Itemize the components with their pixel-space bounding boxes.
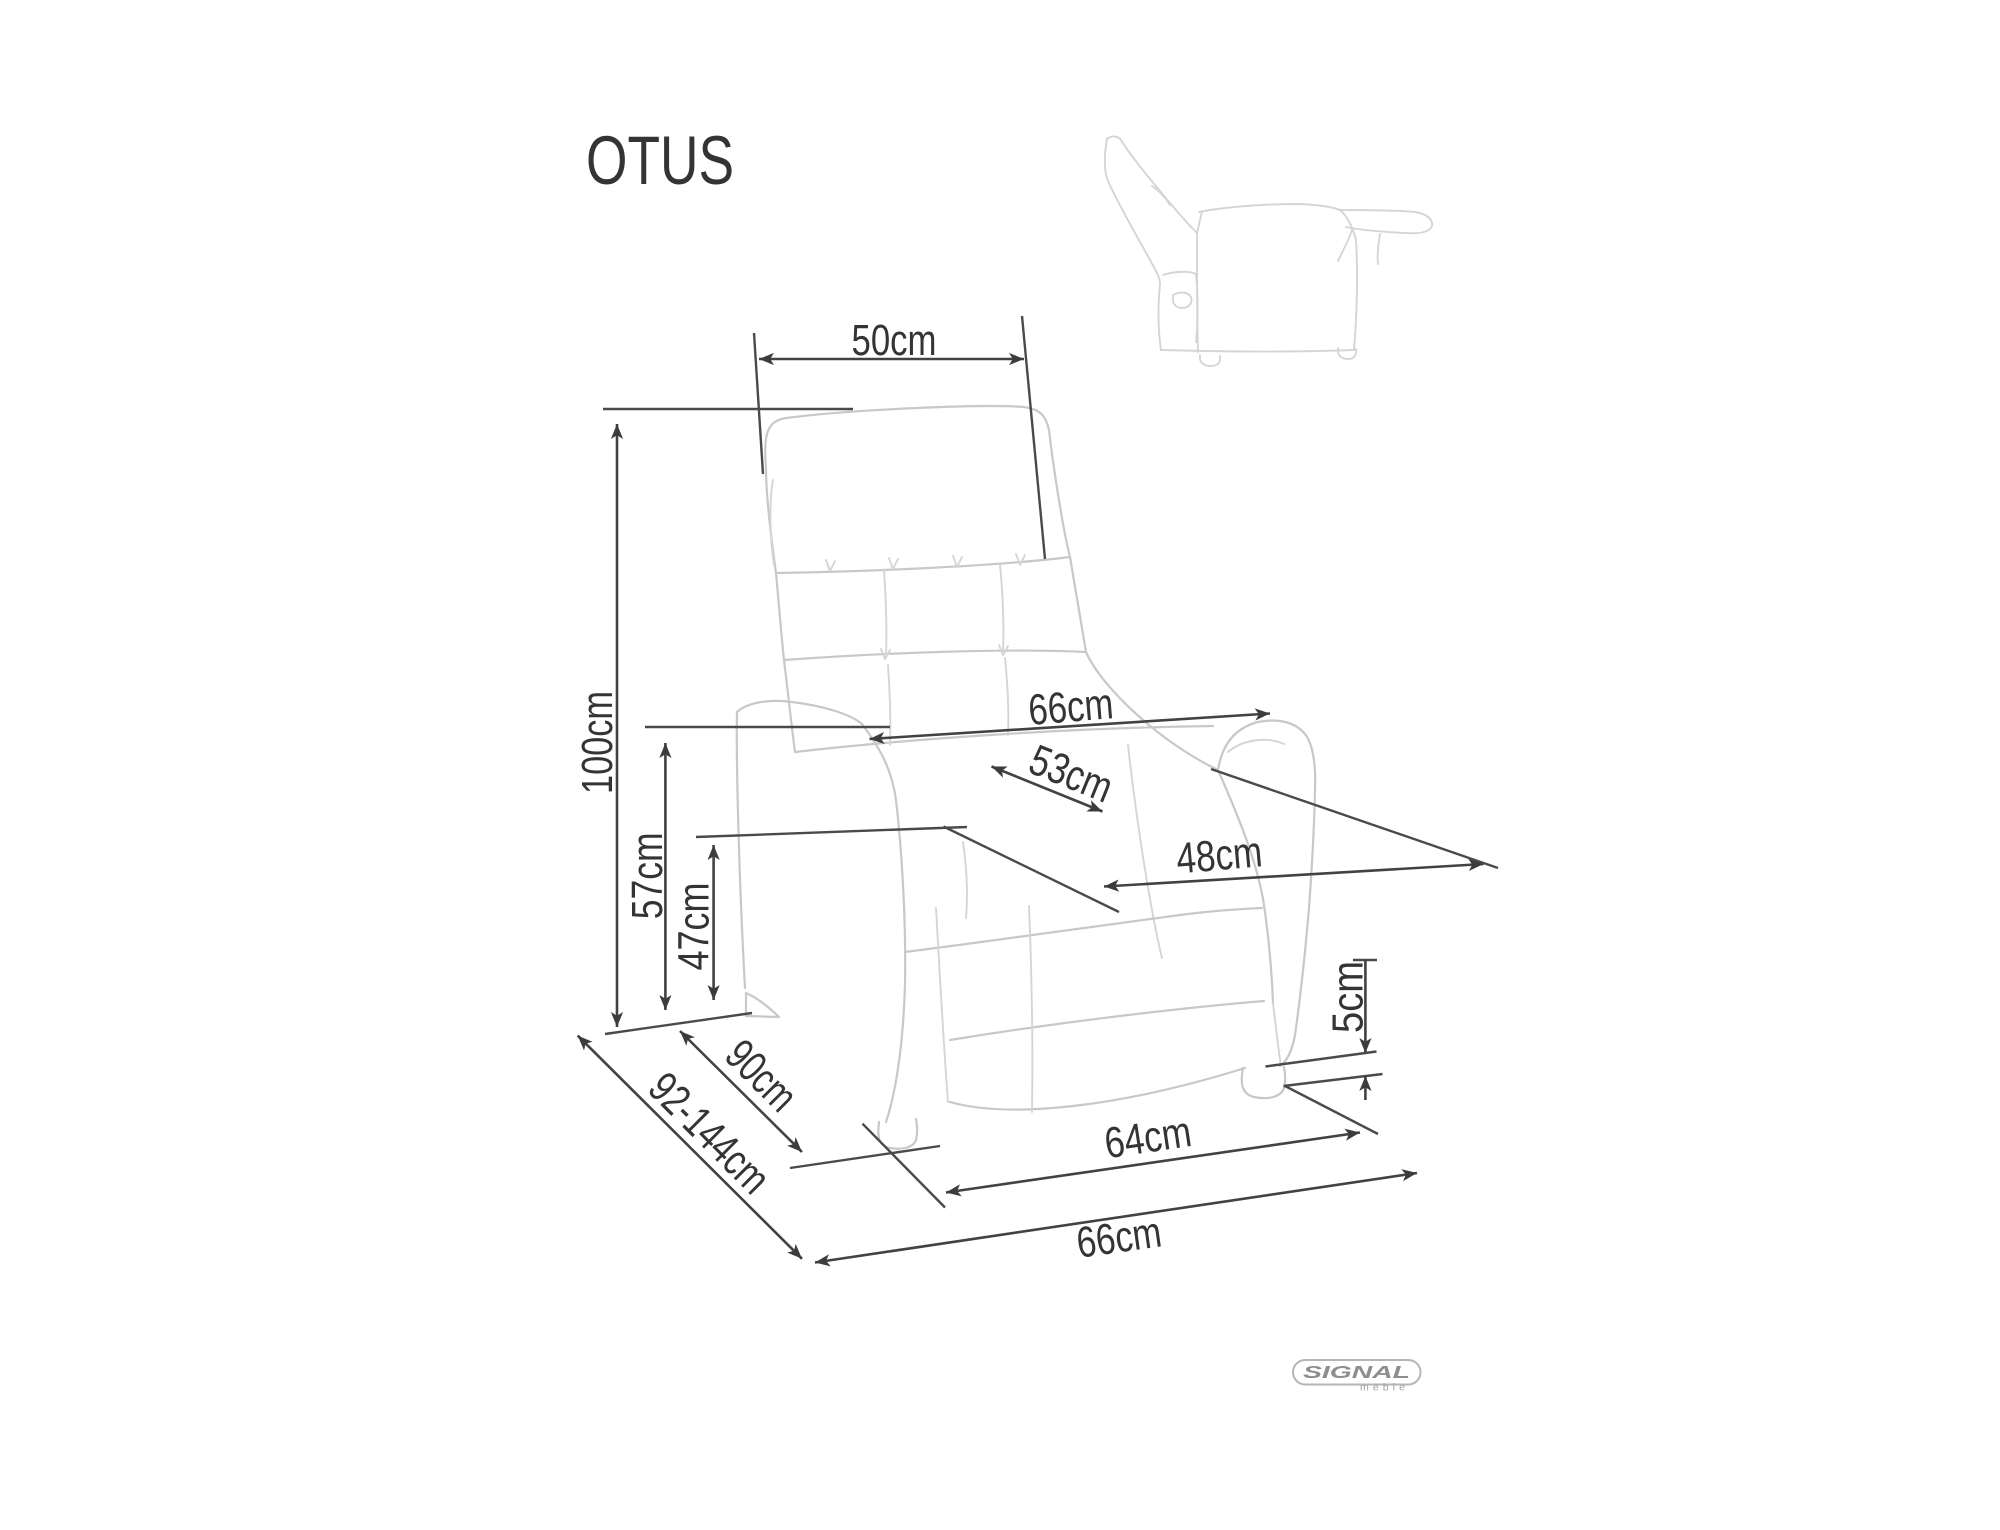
svg-text:meble: meble	[1360, 1382, 1409, 1394]
svg-text:47cm: 47cm	[671, 883, 719, 971]
svg-text:90cm: 90cm	[716, 1031, 807, 1122]
svg-text:50cm: 50cm	[852, 317, 937, 365]
svg-text:100cm: 100cm	[574, 691, 622, 794]
svg-text:57cm: 57cm	[624, 832, 672, 919]
svg-text:66cm: 66cm	[1074, 1208, 1165, 1267]
svg-text:5cm: 5cm	[1325, 961, 1373, 1033]
svg-text:OTUS: OTUS	[586, 122, 734, 199]
svg-text:66cm: 66cm	[1027, 680, 1116, 735]
svg-text:48cm: 48cm	[1174, 828, 1264, 883]
svg-text:53cm: 53cm	[1023, 736, 1120, 812]
svg-text:SIGNAL: SIGNAL	[1303, 1362, 1410, 1382]
